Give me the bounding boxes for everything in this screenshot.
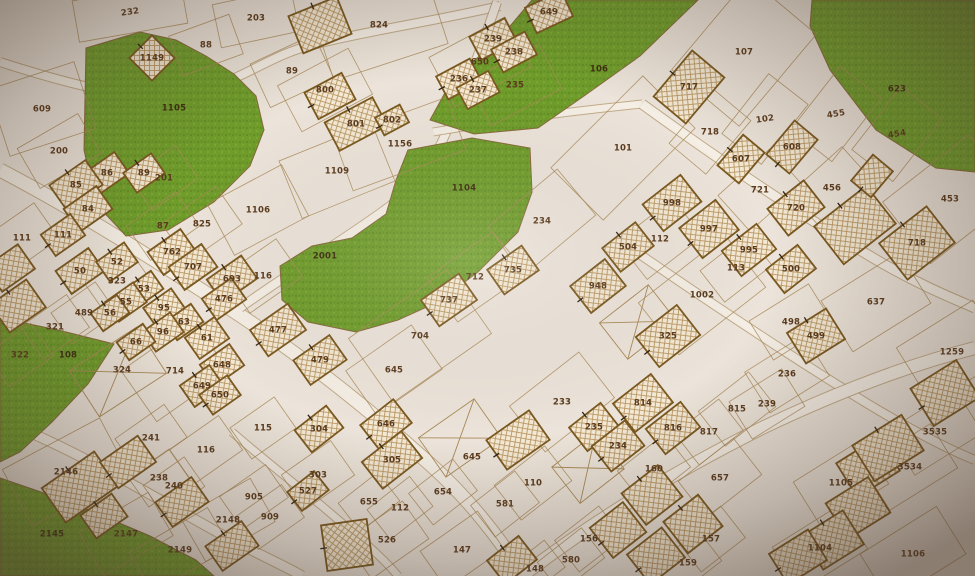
parcel-label-815: 815 <box>728 405 746 415</box>
parcel-label-2001: 2001 <box>313 252 337 262</box>
parcel-label-238: 238 <box>505 48 523 58</box>
parcel-label-148: 148 <box>526 565 544 575</box>
parcel-label-1002: 1002 <box>690 291 714 301</box>
parcel-label-112: 112 <box>391 504 409 514</box>
parcel-label-2147: 2147 <box>114 530 138 540</box>
parcel-label-89: 89 <box>286 67 298 77</box>
parcel-label-63: 63 <box>178 318 190 328</box>
parcel-label-453: 453 <box>941 195 959 205</box>
parcel-label-645: 645 <box>463 453 481 463</box>
parcel-label-814: 814 <box>634 399 652 409</box>
parcel-label-718: 718 <box>908 239 926 249</box>
parcel-label-693: 693 <box>223 275 241 285</box>
parcel-label-2145: 2145 <box>40 530 64 540</box>
parcel-label-648: 648 <box>213 361 231 371</box>
parcel-label-1104: 1104 <box>452 184 476 194</box>
parcel-label-948: 948 <box>589 282 607 292</box>
parcel-label-101: 101 <box>614 144 632 154</box>
parcel-label-303: 303 <box>309 471 327 481</box>
parcel-label-717: 717 <box>680 83 698 93</box>
parcel-label-305: 305 <box>383 456 401 466</box>
cadastral-map[interactable]: 2322038811491105609200824898008018021156… <box>0 0 975 576</box>
parcel-label-609: 609 <box>33 105 51 115</box>
parcel-label-234: 234 <box>533 217 551 227</box>
parcel-label-802: 802 <box>383 116 401 126</box>
parcel-label-239: 239 <box>758 400 776 410</box>
parcel-label-735: 735 <box>504 266 522 276</box>
parcel-label-646: 646 <box>377 420 395 430</box>
parcel-label-84: 84 <box>82 205 94 215</box>
parcel-label-55: 55 <box>120 298 132 308</box>
parcel-label-762: 762 <box>163 248 181 258</box>
parcel-label-712: 712 <box>466 273 484 283</box>
parcel-label-233: 233 <box>553 398 571 408</box>
parcel-label-201: 201 <box>155 174 173 184</box>
parcel-label-1106: 1106 <box>246 206 270 216</box>
parcel-label-995: 995 <box>740 246 758 256</box>
parcel-label-115: 115 <box>254 424 272 434</box>
parcel-label-156: 156 <box>580 535 598 545</box>
parcel-label-608: 608 <box>783 143 801 153</box>
parcel-label-322: 322 <box>11 351 29 361</box>
parcel-label-88: 88 <box>200 41 212 51</box>
parcel-label-581: 581 <box>496 500 514 510</box>
parcel-label-200: 200 <box>50 147 68 157</box>
parcel-label-500: 500 <box>782 265 800 275</box>
parcel-label-720: 720 <box>787 204 805 214</box>
parcel-label-479: 479 <box>311 356 329 366</box>
parcel-label-1259: 1259 <box>940 348 964 358</box>
parcel-label-147: 147 <box>453 546 471 556</box>
parcel-label-324: 324 <box>113 366 131 376</box>
parcel-label-476: 476 <box>215 295 233 305</box>
parcel-label-477: 477 <box>269 326 287 336</box>
parcel-label-234: 234 <box>609 442 627 452</box>
parcel-label-95: 95 <box>158 304 170 314</box>
parcel-label-456: 456 <box>823 184 841 194</box>
parcel-label-236: 236 <box>450 75 468 85</box>
parcel-label-1104: 1104 <box>808 544 832 554</box>
parcel-label-116: 116 <box>254 272 272 282</box>
parcel-label-96: 96 <box>157 328 169 338</box>
parcel-label-1105: 1105 <box>829 479 853 489</box>
parcel-label-499: 499 <box>807 332 825 342</box>
parcel-label-737: 737 <box>440 296 458 306</box>
parcel-label-649: 649 <box>540 8 558 18</box>
parcel-label-157: 157 <box>702 535 720 545</box>
parcel-label-50: 50 <box>74 267 86 277</box>
parcel-label-997: 997 <box>700 225 718 235</box>
parcel-label-1109: 1109 <box>325 167 349 177</box>
parcel-label-304: 304 <box>310 425 328 435</box>
parcel-label-504: 504 <box>619 243 637 253</box>
parcel-label-236: 236 <box>778 370 796 380</box>
parcel-label-657: 657 <box>711 474 729 484</box>
parcel-label-203: 203 <box>247 14 265 24</box>
parcel-label-52: 52 <box>111 258 123 268</box>
parcel-label-801: 801 <box>347 120 365 130</box>
parcel-label-112: 112 <box>651 235 669 245</box>
parcel-label-714: 714 <box>166 367 184 377</box>
parcel-label-527: 527 <box>299 487 317 497</box>
parcel-label-800: 800 <box>316 86 334 96</box>
map-canvas[interactable]: 2322038811491105609200824898008018021156… <box>0 0 975 576</box>
parcel-label-650: 650 <box>471 58 489 68</box>
parcel-label-325: 325 <box>659 332 677 342</box>
parcel-label-2148: 2148 <box>216 516 240 526</box>
parcel-label-721: 721 <box>751 186 769 196</box>
parcel-label-580: 580 <box>562 556 580 566</box>
parcel-label-241: 241 <box>142 434 160 444</box>
parcel-label-645: 645 <box>385 366 403 376</box>
parcel-label-159: 159 <box>679 559 697 569</box>
parcel-label-607: 607 <box>732 155 750 165</box>
parcel-label-909: 909 <box>261 513 279 523</box>
parcel-label-235: 235 <box>506 81 524 91</box>
parcel-label-111: 111 <box>13 234 31 244</box>
parcel-label-110: 110 <box>524 479 542 489</box>
parcel-label-85: 85 <box>70 181 82 191</box>
parcel-label-650: 650 <box>211 391 229 401</box>
parcel-label-108: 108 <box>59 351 77 361</box>
parcel-label-1156: 1156 <box>388 140 412 150</box>
parcel-label-61: 61 <box>201 334 213 344</box>
parcel-label-237: 237 <box>469 86 487 96</box>
parcel-label-654: 654 <box>434 488 452 498</box>
parcel-label-998: 998 <box>663 199 681 209</box>
parcel-label-53: 53 <box>138 285 150 295</box>
parcel-label-707: 707 <box>184 263 202 273</box>
parcel-label-1149: 1149 <box>140 54 164 64</box>
parcel-label-816: 816 <box>664 424 682 434</box>
parcel-label-107: 107 <box>735 48 753 58</box>
parcel-label-2149: 2149 <box>168 546 192 556</box>
parcel-label-240: 240 <box>165 482 183 492</box>
parcel-label-824: 824 <box>370 21 388 31</box>
parcel-label-3534: 3534 <box>898 463 922 473</box>
parcel-label-649: 649 <box>193 382 211 392</box>
parcel-label-489: 489 <box>75 309 93 319</box>
parcel-label-1106: 1106 <box>901 550 925 560</box>
parcel-label-655: 655 <box>360 498 378 508</box>
parcel-label-323: 323 <box>108 277 126 287</box>
parcel-label-637: 637 <box>867 298 885 308</box>
parcel-label-526: 526 <box>378 536 396 546</box>
parcel-label-623: 623 <box>888 85 906 95</box>
parcel-label-3535: 3535 <box>923 428 947 438</box>
parcel-label-235: 235 <box>585 423 603 433</box>
parcel-label-106: 106 <box>590 65 608 75</box>
parcel-label-86: 86 <box>101 169 113 179</box>
parcel-label-817: 817 <box>700 428 718 438</box>
parcel-label-2146: 2146 <box>54 468 78 478</box>
parcel-label-89: 89 <box>138 169 150 179</box>
parcel-label-116: 116 <box>197 446 215 456</box>
parcel-label-160: 160 <box>645 465 663 475</box>
parcel-label-905: 905 <box>245 493 263 503</box>
parcel-label-825: 825 <box>193 220 211 230</box>
parcel-label-321: 321 <box>46 323 64 333</box>
parcel-label-56: 56 <box>104 309 116 319</box>
parcel-label-239: 239 <box>484 35 502 45</box>
parcel-label-66: 66 <box>130 338 142 348</box>
parcel-label-1105: 1105 <box>162 104 186 114</box>
parcel-label-718: 718 <box>701 128 719 138</box>
parcel-label-113: 113 <box>727 264 745 274</box>
parcel-label-111: 111 <box>54 231 72 241</box>
parcel-label-87: 87 <box>157 222 169 232</box>
parcel-label-498: 498 <box>782 318 800 328</box>
parcel-label-704: 704 <box>411 332 429 342</box>
